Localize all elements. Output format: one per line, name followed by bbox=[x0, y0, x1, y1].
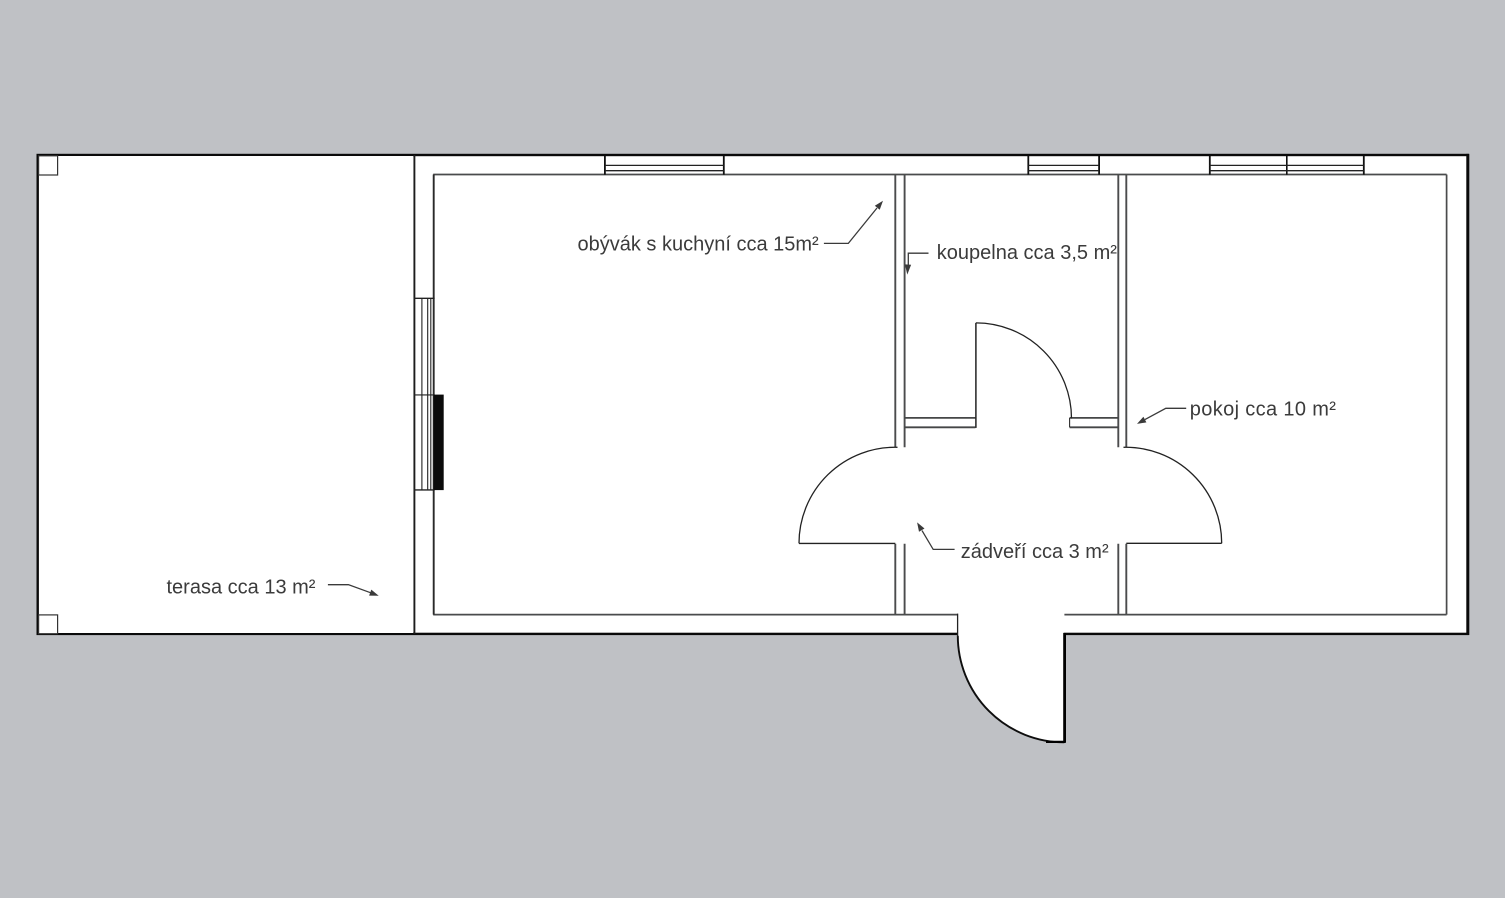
svg-text:koupelna cca 3,5 m²: koupelna cca 3,5 m² bbox=[937, 242, 1117, 264]
svg-text:zádveří cca 3 m²: zádveří cca 3 m² bbox=[961, 541, 1109, 563]
svg-text:obývák s kuchyní cca 15m²: obývák s kuchyní cca 15m² bbox=[578, 234, 820, 256]
svg-text:pokoj cca 10 m²: pokoj cca 10 m² bbox=[1190, 399, 1336, 421]
svg-text:terasa cca 13 m²: terasa cca 13 m² bbox=[167, 576, 316, 598]
